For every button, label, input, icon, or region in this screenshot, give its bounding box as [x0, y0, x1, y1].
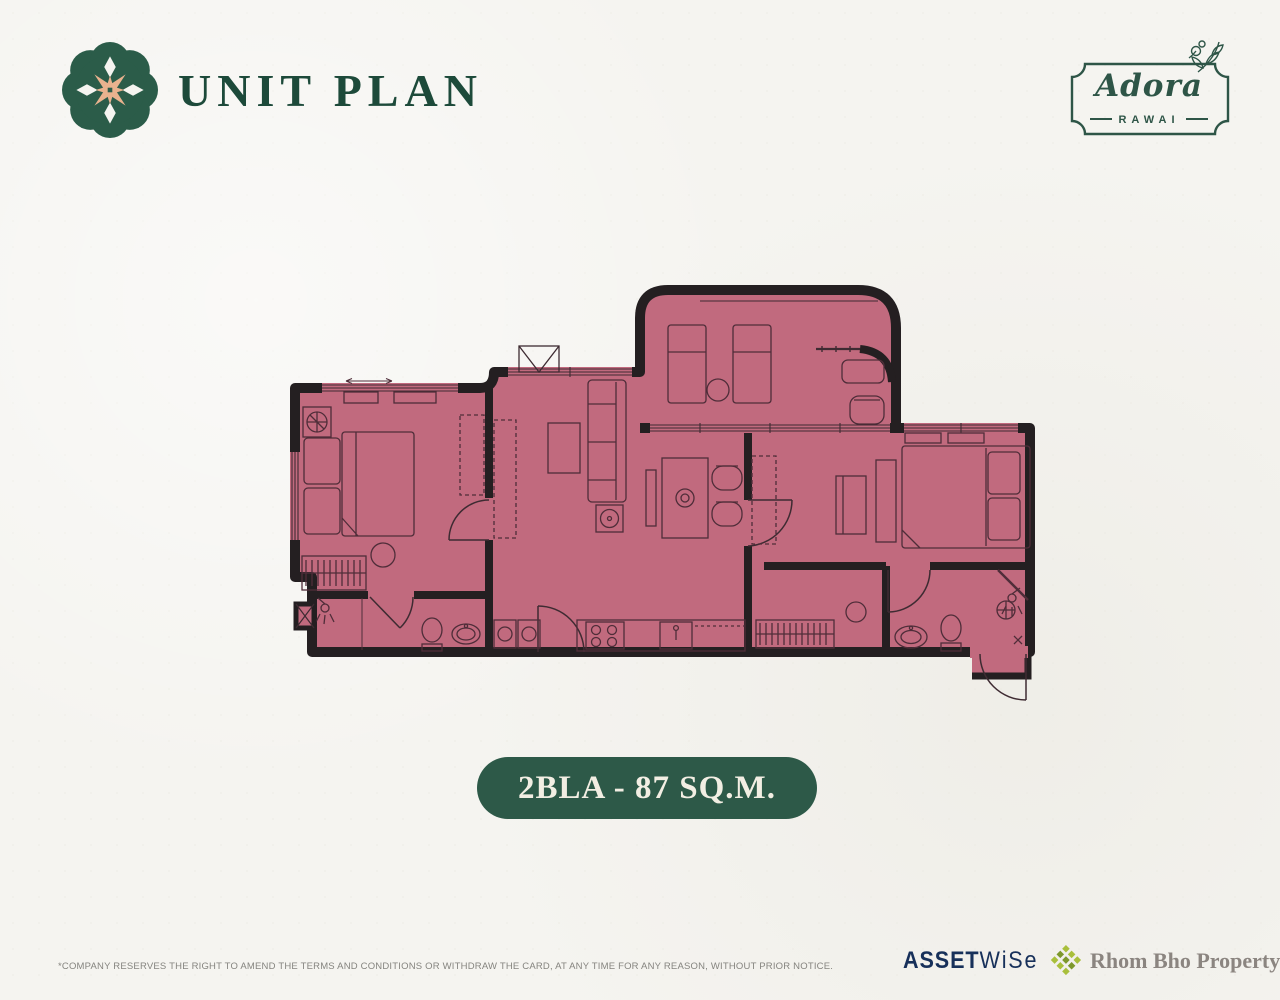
- rhombho-logo: Rhom Bho Property: [1090, 948, 1280, 974]
- dimension-arrow: [346, 379, 392, 384]
- unit-area-badge: 2BLA - 87 SQ.M.: [477, 757, 817, 819]
- footer-disclaimer: *COMPANY RESERVES THE RIGHT TO AMEND THE…: [58, 961, 833, 972]
- bedroom2-window: [322, 383, 458, 393]
- assetwise-logo-part2: WiSe: [980, 947, 1039, 974]
- bedroom2-side-window: [290, 452, 300, 540]
- unit-area-label: 2BLA - 87 SQ.M.: [518, 770, 776, 807]
- entrance-opening: [970, 646, 1028, 658]
- bedroom1-window: [904, 423, 1018, 433]
- assetwise-logo-part1: ASSET: [903, 947, 980, 974]
- floor-plan: [0, 0, 1280, 1000]
- balcony-sliding-door: [650, 423, 890, 433]
- diamond-cluster-icon: [1048, 944, 1082, 978]
- assetwise-logo: ASSETWiSe: [903, 947, 1038, 975]
- unit-plan-page: { "page": { "background_color": "#f5f4f0…: [0, 0, 1280, 1000]
- shaft-box: [296, 604, 314, 628]
